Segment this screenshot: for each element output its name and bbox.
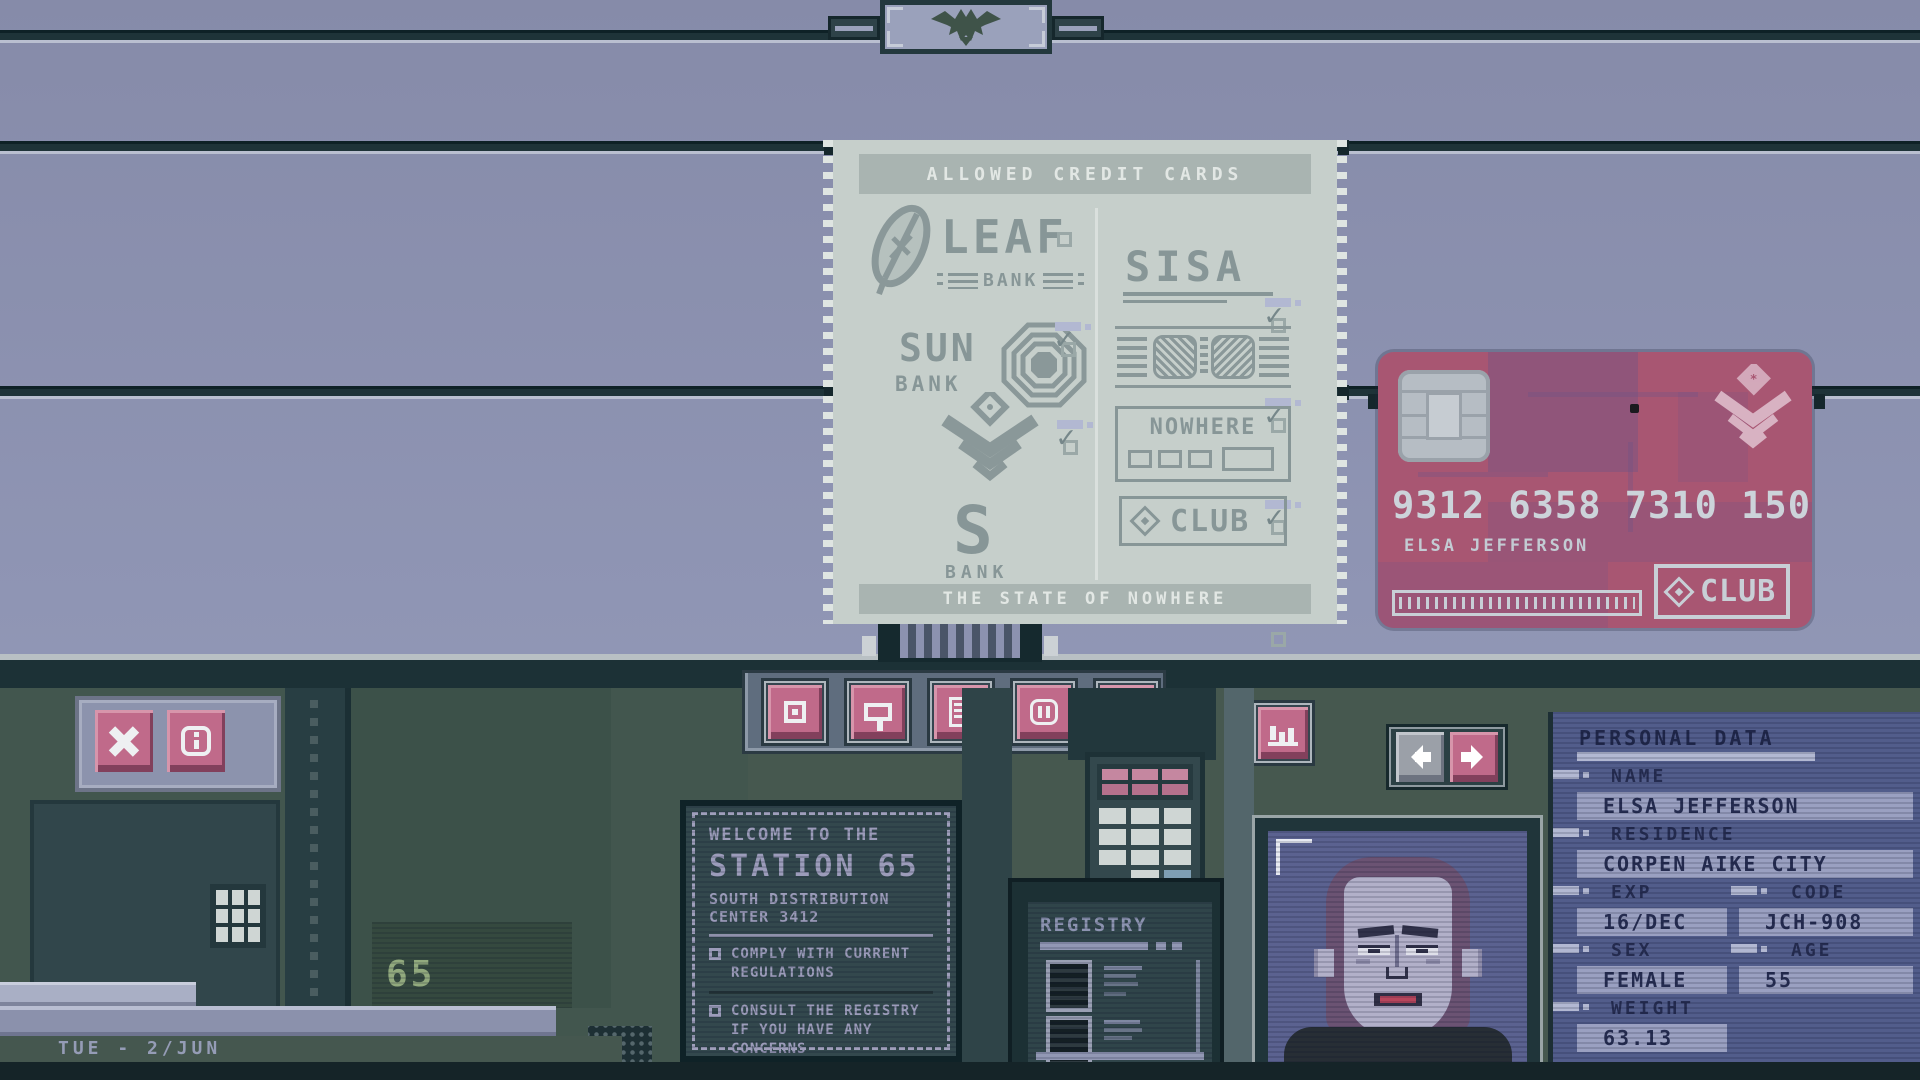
sign-divider: [709, 934, 933, 937]
portrait-nose-tip: [1386, 967, 1408, 979]
slot-icon: [1030, 699, 1058, 725]
card-holder: ELSA JEFFERSON: [1404, 536, 1589, 556]
portrait-lips: [1380, 996, 1416, 1003]
portrait-shadow: [1356, 959, 1370, 964]
sign-mode-button[interactable]: [851, 685, 905, 739]
personal-data-panel: PERSONAL DATA NAME ELSA JEFFERSON RESIDE…: [1548, 712, 1920, 1080]
portrait-photo: [1268, 831, 1527, 1067]
poster-footer: THE STATE OF NOWHERE: [859, 584, 1311, 614]
registry-dot: [1172, 942, 1182, 950]
portrait-ear: [1314, 949, 1334, 977]
field-tick: [1731, 944, 1757, 953]
chart-button[interactable]: [1258, 707, 1308, 759]
desk-ledge: [0, 1006, 556, 1038]
age-value[interactable]: 55: [1739, 966, 1913, 994]
chevron-bank-icon: [935, 392, 1045, 484]
portrait-clothes: [1284, 1027, 1512, 1067]
field-tick: [1553, 770, 1579, 779]
card-brand: CLUB: [1700, 574, 1776, 609]
nav-right-button[interactable]: [1450, 732, 1498, 782]
leaf-bank-logo: LEAF: [941, 210, 1068, 264]
exp-label: EXP: [1611, 882, 1653, 903]
code-value[interactable]: JCH-908: [1739, 908, 1913, 936]
field-tick: [1553, 1002, 1579, 1011]
sign-sub2: CENTER 3412: [709, 908, 933, 926]
field-tick: [1731, 886, 1757, 895]
phone-keypad[interactable]: [1085, 752, 1205, 898]
close-button[interactable]: [95, 710, 153, 772]
unit-number: 65: [386, 954, 435, 995]
name-value[interactable]: ELSA JEFFERSON: [1577, 792, 1913, 820]
portrait-pupil: [1416, 949, 1428, 953]
exp-value[interactable]: 16/DEC: [1577, 908, 1727, 936]
applicant-portrait[interactable]: [1255, 818, 1540, 1080]
sign-rule-2: CONSULT THE REGISTRYIF YOU HAVE ANYCONCE…: [709, 1002, 933, 1059]
field-tick: [1553, 886, 1579, 895]
nowhere-logo-box: NOWHERE: [1115, 406, 1291, 482]
placard-icon: [864, 703, 892, 721]
registry-scrollbar[interactable]: [1196, 960, 1200, 1056]
card-barcode: [1392, 590, 1642, 616]
coins-icon: [1115, 326, 1291, 388]
sign-sub1: SOUTH DISTRIBUTION: [709, 890, 933, 908]
portrait-shadow: [1426, 959, 1440, 964]
sun-checkbox: ✓: [1059, 334, 1081, 356]
nowhere-cards-icon: [1128, 447, 1278, 471]
weight-value[interactable]: 63.13: [1577, 1024, 1727, 1052]
info-icon: [181, 726, 211, 756]
club-checkbox: [1269, 624, 1291, 646]
leaf-checkbox: [1055, 224, 1077, 246]
column-divider: [1224, 688, 1254, 1080]
stamp-icon: [784, 701, 806, 723]
stamp-slot-button[interactable]: [1017, 685, 1071, 739]
bullet-icon: [709, 948, 721, 960]
unit-label-panel: 65: [372, 922, 572, 1008]
card-number: 9312 6358 7310 1507: [1392, 484, 1802, 527]
portrait-ear: [1462, 949, 1482, 977]
registry-title: REGISTRY: [1040, 914, 1148, 936]
name-label: NAME: [1611, 766, 1666, 787]
x-icon: [109, 726, 139, 756]
poster-fold: [1095, 208, 1098, 580]
age-label: AGE: [1791, 940, 1833, 961]
photo-corner-bracket: [1276, 839, 1312, 875]
registry-title-bar: [1040, 942, 1148, 950]
credit-card[interactable]: * 9312 6358 7310 1507 ELSA JEFFERSON CLU…: [1378, 352, 1812, 628]
info-button[interactable]: [167, 710, 225, 772]
column-divider: [962, 688, 1012, 1080]
leaf-icon: [865, 202, 931, 306]
code-label: CODE: [1791, 882, 1846, 903]
pipe-horizontal: [0, 982, 196, 1008]
residence-value[interactable]: CORPEN AIKE CITY: [1577, 850, 1913, 878]
sisa-logo: SISA: [1125, 242, 1246, 291]
svg-text:*: *: [1750, 371, 1758, 386]
card-pin: [1814, 394, 1825, 409]
card-brand-diamond-icon: [1663, 576, 1694, 607]
arrow-right-icon: [1459, 745, 1489, 769]
portrait-pupil: [1368, 949, 1380, 953]
club-logo: CLUB: [1170, 504, 1250, 539]
club-logo-box: CLUB: [1119, 496, 1287, 546]
sisa-underline: [1123, 300, 1227, 303]
plaque-arm: [1052, 16, 1104, 40]
keypad-pink-keys: [1097, 764, 1193, 800]
poster-perforation: [823, 140, 833, 624]
sign-divider: [709, 991, 933, 994]
portrait-nose: [1395, 935, 1399, 969]
poster-title: ALLOWED CREDIT CARDS: [859, 154, 1311, 194]
card-bank-chevron-icon: *: [1710, 364, 1796, 460]
nowhere-logo: NOWHERE: [1128, 415, 1278, 440]
registry-book[interactable]: [1046, 1016, 1092, 1068]
title-underline: [1577, 752, 1815, 761]
desk-bottom-shadow: [0, 1062, 1920, 1080]
club-diamond-icon: [1129, 505, 1160, 536]
s-bank-sub: BANK: [945, 562, 1008, 583]
sign-rule-1: COMPLY WITH CURRENTREGULATIONS: [709, 945, 933, 983]
sign-welcome: WELCOME TO THE: [709, 825, 933, 845]
card-chip-icon: [1398, 370, 1490, 462]
papers-please-checkpoint: ALLOWED CREDIT CARDS LEAF BANK SUN BANK: [0, 0, 1920, 1080]
date-display: TUE - 2/JUN: [58, 1038, 221, 1059]
registry-console: REGISTRY: [1008, 878, 1224, 1080]
registry-book[interactable]: [1046, 960, 1092, 1012]
arrow-left-icon: [1405, 745, 1435, 769]
personal-data-title: PERSONAL DATA: [1579, 726, 1775, 750]
plaque-arm: [828, 16, 880, 40]
card-hole: [1630, 404, 1639, 413]
residence-label: RESIDENCE: [1611, 824, 1736, 845]
registry-panel[interactable]: REGISTRY: [1028, 902, 1212, 1068]
inspect-mode-button[interactable]: [768, 685, 822, 739]
allowed-credit-cards-poster[interactable]: ALLOWED CREDIT CARDS LEAF BANK SUN BANK: [833, 140, 1337, 624]
station-sign: WELCOME TO THE STATION 65 SOUTH DISTRIBU…: [680, 800, 962, 1062]
keypad-keys: [1097, 806, 1193, 888]
mini-keypad[interactable]: [210, 884, 266, 948]
sun-bank-logo: SUN: [899, 326, 977, 370]
card-brand-box: CLUB: [1654, 564, 1790, 619]
bullet-icon: [709, 1005, 721, 1017]
sign-station: STATION 65: [709, 849, 933, 884]
registry-dot: [1156, 942, 1166, 950]
field-tick: [1553, 828, 1579, 837]
sex-label: SEX: [1611, 940, 1653, 961]
leaf-bank-sub: BANK: [937, 270, 1084, 291]
console-hood: [1068, 688, 1216, 760]
chevron-checkbox: ✓: [1061, 432, 1083, 454]
registry-bottom-bar: [1036, 1052, 1204, 1060]
eagle-icon: [923, 7, 1009, 47]
sex-value[interactable]: FEMALE: [1577, 966, 1727, 994]
poster-mount-grill: [878, 618, 1042, 662]
weight-label: WEIGHT: [1611, 998, 1694, 1019]
nav-left-button[interactable]: [1396, 732, 1444, 782]
poster-perforation: [1337, 140, 1347, 624]
sisa-underline: [1123, 292, 1273, 296]
field-tick: [1553, 944, 1579, 953]
s-bank-logo: S: [953, 492, 993, 569]
bar-chart-icon: [1268, 720, 1298, 746]
state-emblem-plaque: [880, 0, 1052, 54]
status-bar: TUE - 2/JUN: [0, 1036, 622, 1062]
